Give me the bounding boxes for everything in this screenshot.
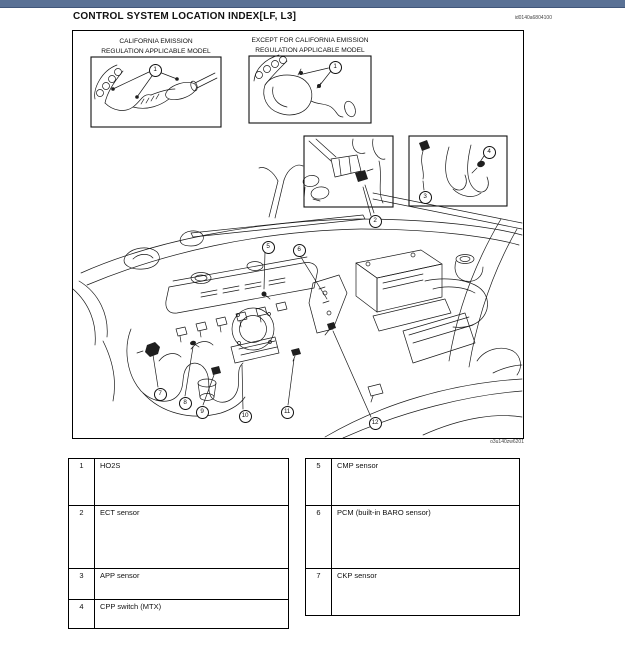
table-cell-label: ECT sensor	[95, 506, 288, 568]
table-cell-num: 3	[69, 569, 95, 599]
callout-11: 11	[281, 406, 294, 419]
inset-label-line: EXCEPT FOR CALIFORNIA EMISSION	[251, 37, 368, 44]
table-cell-num: 1	[69, 459, 95, 505]
table-cell-label: CMP sensor	[332, 459, 519, 505]
callout-6: 6	[293, 244, 306, 257]
inset-label-except-california: EXCEPT FOR CALIFORNIA EMISSION REGULATIO…	[230, 36, 390, 55]
table-row: 5 CMP sensor	[306, 459, 519, 505]
callout-12: 12	[369, 417, 382, 430]
table-cell-num: 7	[306, 569, 332, 615]
table-row: 1 HO2S	[69, 459, 288, 505]
document-id-code: id0140a6804100	[420, 15, 552, 21]
table-row: 2 ECT sensor	[69, 505, 288, 568]
table-row: 4 CPP switch (MTX)	[69, 599, 288, 628]
location-index-figure: CALIFORNIA EMISSION REGULATION APPLICABL…	[72, 30, 524, 439]
window-top-strip	[0, 0, 625, 8]
table-cell-num: 2	[69, 506, 95, 568]
callout-4: 4	[483, 146, 496, 159]
inset-label-line: REGULATION APPLICABLE MODEL	[101, 48, 210, 55]
inset-label-california: CALIFORNIA EMISSION REGULATION APPLICABL…	[83, 37, 229, 56]
table-cell-label: PCM (built-in BARO sensor)	[332, 506, 519, 568]
table-cell-label: HO2S	[95, 459, 288, 505]
callout-8: 8	[179, 397, 192, 410]
page-title: CONTROL SYSTEM LOCATION INDEX[LF, L3]	[73, 11, 296, 22]
callout-5: 5	[262, 241, 275, 254]
table-cell-num: 4	[69, 600, 95, 628]
callout-3: 3	[419, 191, 432, 204]
callout-2: 2	[369, 215, 382, 228]
callout-9: 9	[196, 406, 209, 419]
inset-label-line: CALIFORNIA EMISSION	[119, 38, 192, 45]
index-table-right: 5 CMP sensor 6 PCM (built-in BARO sensor…	[305, 458, 520, 616]
table-cell-label: CPP switch (MTX)	[95, 600, 288, 628]
callout-7: 7	[154, 388, 167, 401]
figure-art-code: o3u140zw6201	[400, 439, 524, 445]
table-row: 7 CKP sensor	[306, 568, 519, 615]
callout-1-except: 1	[329, 61, 342, 74]
table-row: 3 APP sensor	[69, 568, 288, 599]
callout-1-california: 1	[149, 64, 162, 77]
engine-bay-line-art	[73, 31, 523, 438]
callout-10: 10	[239, 410, 252, 423]
table-cell-label: APP sensor	[95, 569, 288, 599]
table-row: 6 PCM (built-in BARO sensor)	[306, 505, 519, 568]
inset-label-line: REGULATION APPLICABLE MODEL	[255, 47, 364, 54]
index-table-left: 1 HO2S 2 ECT sensor 3 APP sensor 4 CPP s…	[68, 458, 289, 629]
table-cell-num: 6	[306, 506, 332, 568]
table-cell-num: 5	[306, 459, 332, 505]
manual-page: CONTROL SYSTEM LOCATION INDEX[LF, L3] id…	[0, 0, 625, 654]
table-cell-label: CKP sensor	[332, 569, 519, 615]
